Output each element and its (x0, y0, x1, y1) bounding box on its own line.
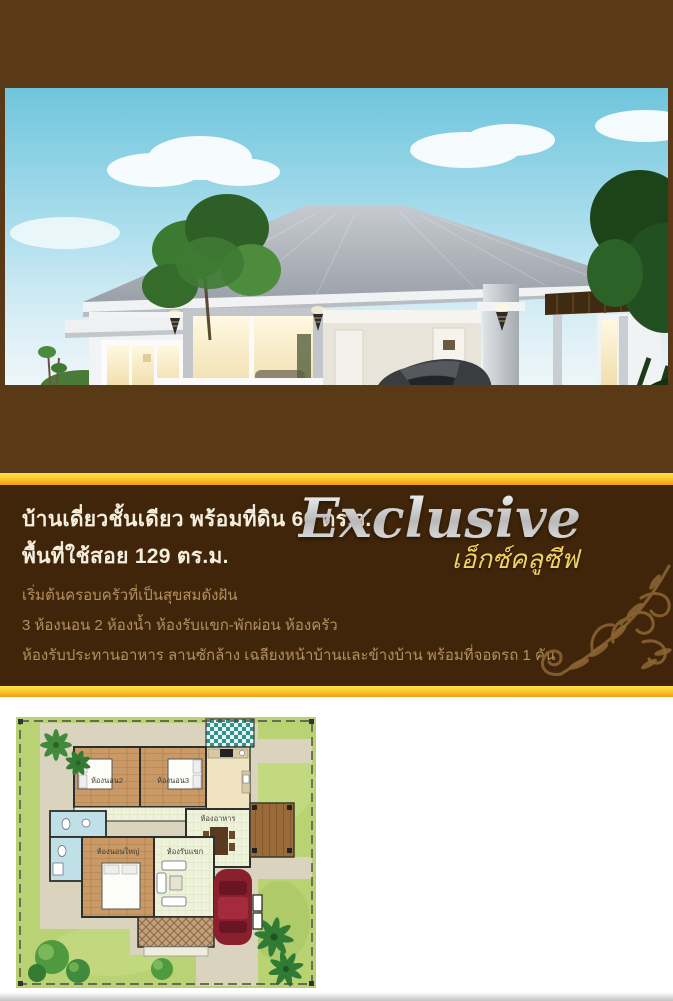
feature-list: เริ่มต้นครอบครัวที่เป็นสุขสมดังฝัน 3 ห้อ… (22, 581, 555, 671)
feature-line-1: 3 ห้องนอน 2 ห้องน้ำ ห้องรับแขก-พักผ่อน ห… (22, 611, 555, 641)
top-band (0, 0, 673, 88)
label-living: ห้องรับแขก (167, 847, 203, 856)
label-bedroom2: ห้องนอน2 (91, 776, 123, 785)
floorplan-section: ห้องนอน2 ห้องนอน3 ห้องอาหาร ห้องนอนใหญ่ … (0, 697, 673, 1001)
house-illustration: ภาพบ้านและบรรยากาศจำลอง (5, 88, 668, 385)
plan-porch (138, 917, 214, 956)
gold-stripe-top (0, 473, 673, 485)
house-photo: ภาพบ้านและบรรยากาศจำลอง (5, 88, 668, 385)
house-walls (65, 308, 335, 385)
info-section: บ้านเดี่ยวชั้นเดียว พร้อมที่ดิน 60 ตร.ว.… (0, 485, 673, 686)
feature-line-2: ห้องรับประทานอาหาร ลานซักล้าง เฉลียงหน้า… (22, 641, 555, 671)
gold-stripe-bottom (0, 686, 673, 697)
floorplan-svg: ห้องนอน2 ห้องนอน3 ห้องอาหาร ห้องนอนใหญ่ … (10, 711, 335, 994)
plan-laundry (206, 719, 254, 747)
tagline: เริ่มต้นครอบครัวที่เป็นสุขสมดังฝัน (22, 581, 555, 611)
brochure-page: ภาพบ้านและบรรยากาศจำลอง บ้านเดี่ยวชั้นเด… (0, 0, 673, 1001)
label-master-bedroom: ห้องนอนใหญ่ (97, 847, 140, 856)
brand-name-en: Exclusive (298, 485, 581, 551)
label-dining: ห้องอาหาร (200, 814, 235, 823)
label-bedroom3: ห้องนอน3 (157, 776, 189, 785)
carport-column (477, 284, 525, 385)
mid-band (0, 385, 673, 473)
plan-kitchen (206, 747, 250, 809)
page-bottom-shadow (0, 992, 673, 1001)
brand-block: Exclusive เอ็กซ์คลูซีฟ (298, 485, 581, 573)
plan-car (214, 869, 252, 945)
